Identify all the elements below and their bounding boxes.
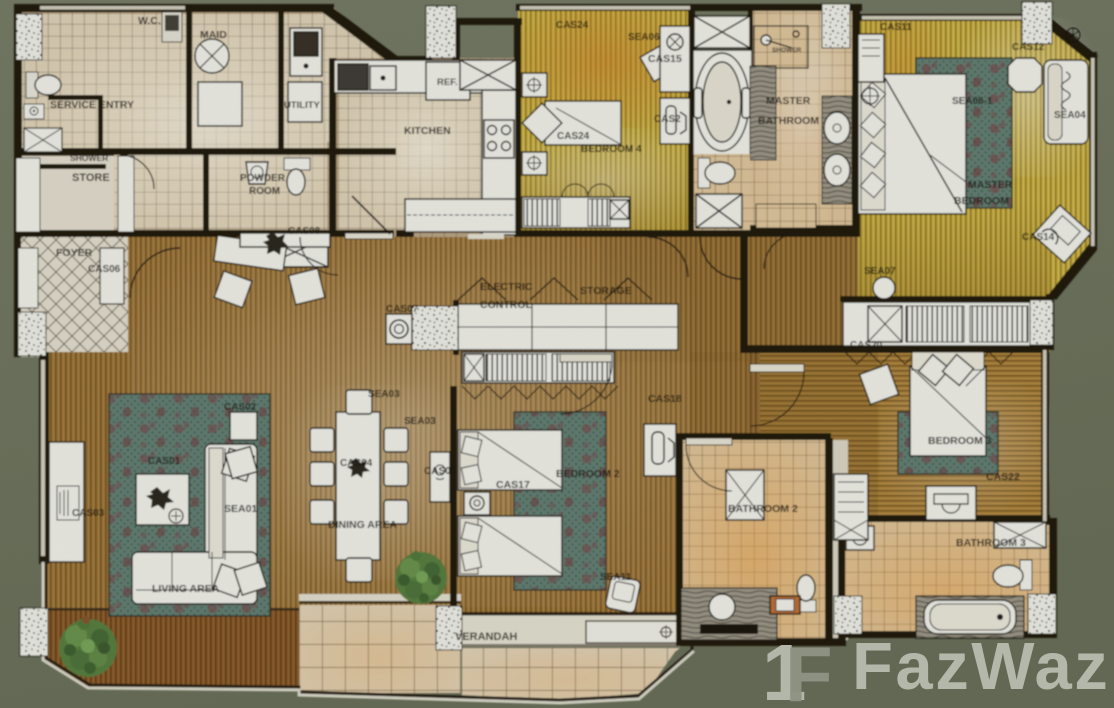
- svg-text:F: F: [785, 630, 833, 708]
- svg-text:FazWaz: FazWaz: [852, 629, 1110, 704]
